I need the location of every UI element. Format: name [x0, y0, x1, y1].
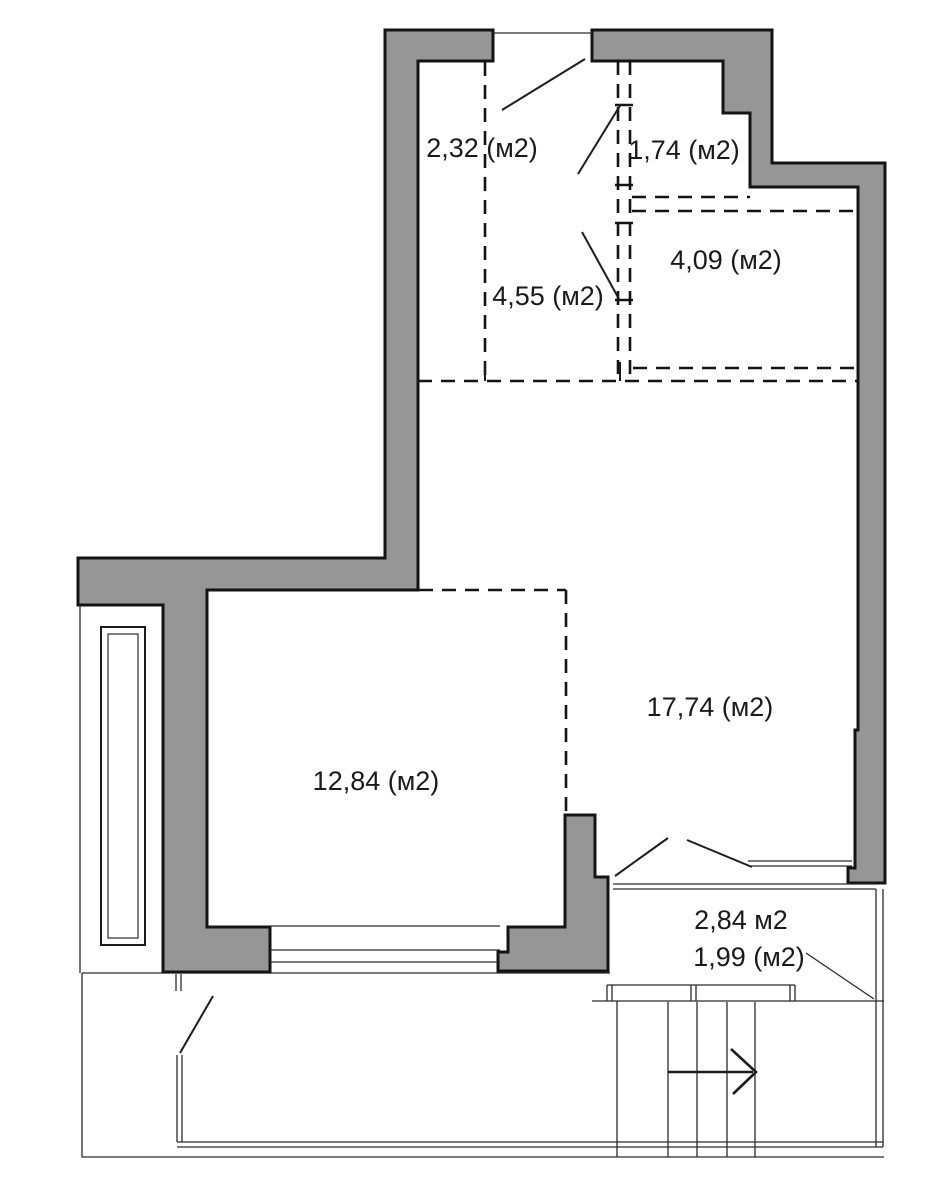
room-area-label: 4,55 (м2)	[492, 281, 604, 311]
room-area-label: 4,09 (м2)	[670, 245, 782, 275]
door-swing-line	[578, 104, 621, 174]
walls	[78, 30, 885, 972]
balcony-door-swing-line	[615, 838, 668, 876]
room-area-label: 2,84 м2	[694, 905, 788, 935]
entry-door-swing-line	[502, 59, 585, 110]
area-leader-line	[806, 953, 874, 999]
floor-plan-canvas: 2,32 (м2) 1,74 (м2) 4,55 (м2) 4,09 (м2) …	[0, 0, 950, 1188]
room-area-label: 17,74 (м2)	[647, 692, 774, 722]
floor-plan-drawing: 2,32 (м2) 1,74 (м2) 4,55 (м2) 4,09 (м2) …	[0, 0, 950, 1188]
balcony-door-swing-line	[687, 840, 752, 867]
wall-bottom-center	[498, 815, 608, 971]
room-area-label: 2,32 (м2)	[426, 133, 538, 163]
staircase	[617, 1001, 756, 1157]
room-area-label: 12,84 (м2)	[313, 766, 440, 796]
door-swing-line	[180, 996, 213, 1053]
stairs-direction-arrow-icon	[668, 1049, 756, 1094]
room-area-label: 1,99 (м2)	[693, 942, 805, 972]
room-area-label: 1,74 (м2)	[628, 135, 740, 165]
